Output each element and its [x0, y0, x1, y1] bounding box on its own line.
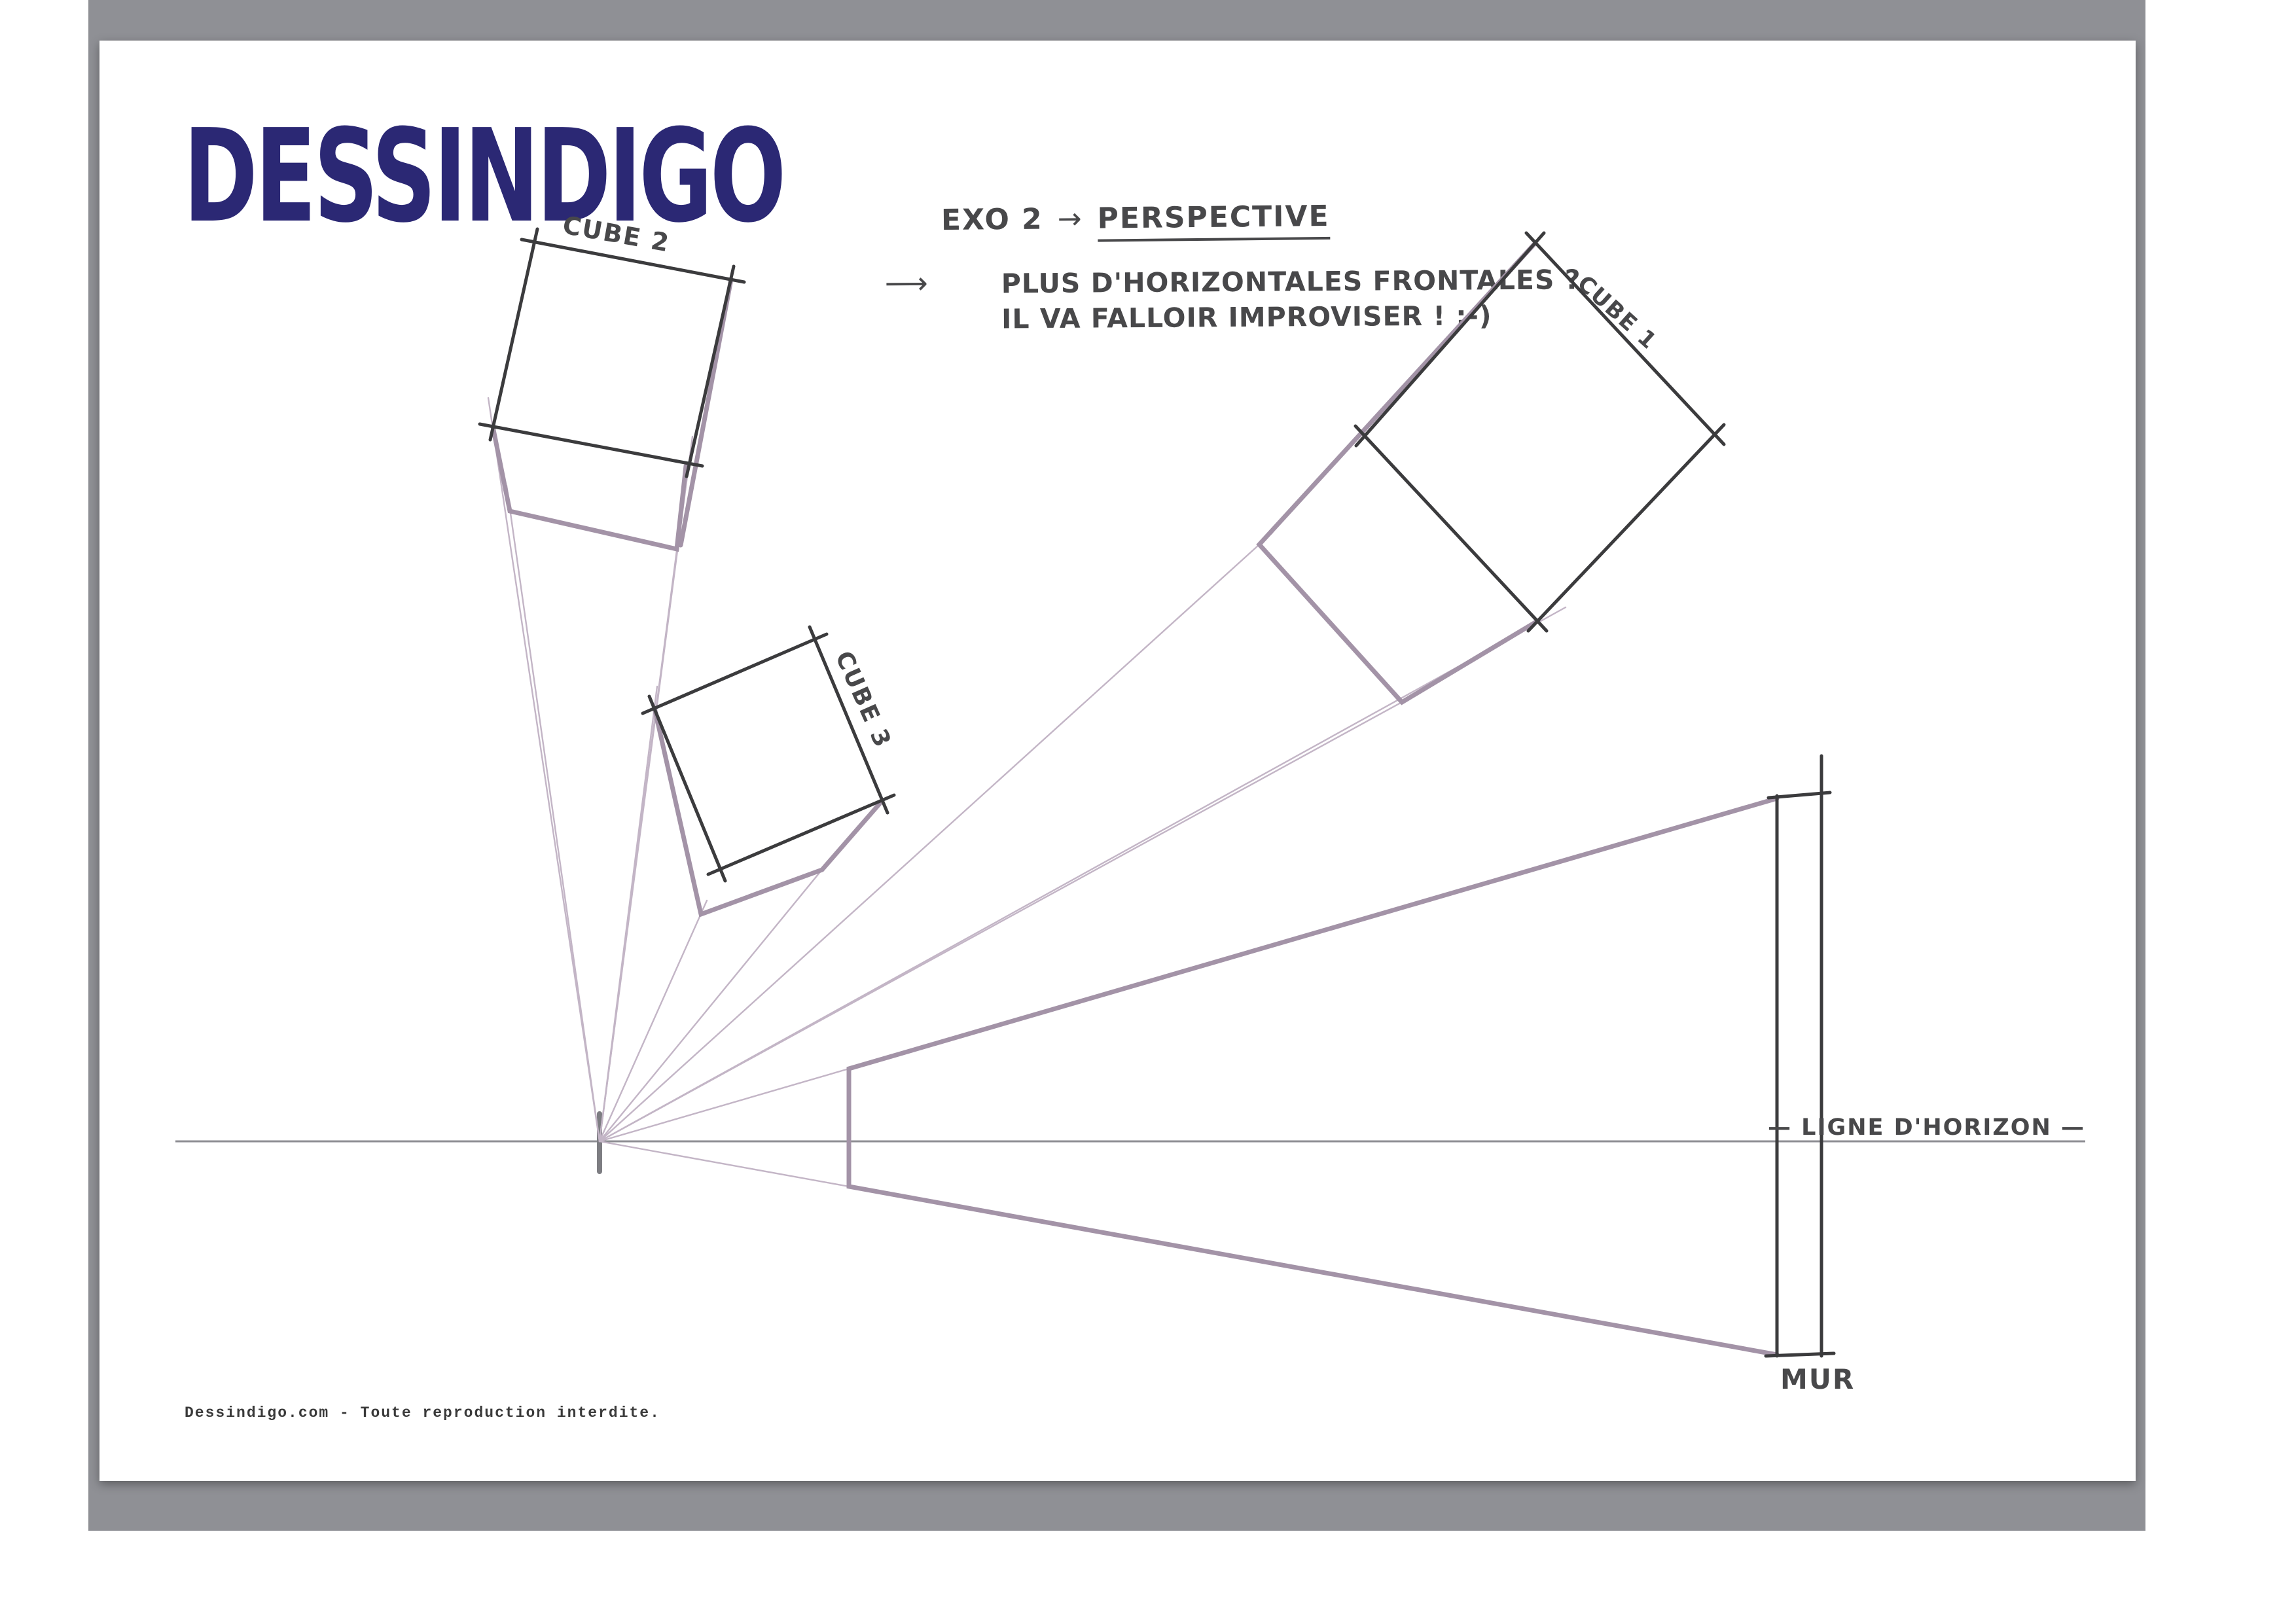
fan-line [600, 856, 833, 1141]
cube1-label: CUBE 1 [1572, 270, 1662, 355]
cube1-front-edge [1526, 233, 1724, 444]
fan-line [600, 607, 1566, 1141]
fan-line [600, 687, 657, 1141]
cube2-sketch: CUBE 2 [480, 211, 744, 549]
cube1-front-edge [1355, 426, 1547, 631]
fan-line [488, 398, 600, 1141]
cube2-front-edge [687, 266, 734, 476]
cube3-hidden-faces [655, 708, 880, 914]
cube2-front-edge [480, 424, 702, 466]
wall-sketch: MUR [849, 756, 1855, 1395]
cube1-sketch: CUBE 1 [1259, 233, 1724, 702]
fan-line [600, 1141, 849, 1186]
cube3-front-edge [643, 634, 827, 713]
fan-line [507, 486, 600, 1141]
construction-fan [488, 398, 1566, 1186]
wall-label: MUR [1780, 1363, 1855, 1395]
cube2-front-edge [490, 229, 537, 440]
cube1-front-edge [1528, 425, 1724, 631]
cube2-right-receding-edge [681, 279, 731, 545]
cube3-front-edge [708, 795, 894, 874]
cube1-front-edge [1356, 233, 1544, 446]
wall-receding-face [849, 798, 1777, 1355]
copyright-note: Dessindigo.com - Toute reproduction inte… [185, 1404, 660, 1421]
perspective-drawing: CUBE 2 CUBE 3 CUBE 1 MUR — LIGNE D'HORIZ… [0, 0, 2296, 1623]
fan-line [600, 1069, 849, 1141]
cube3-sketch: CUBE 3 [643, 627, 896, 914]
fan-line [600, 533, 1272, 1141]
horizon-label: — LIGNE D'HORIZON — [1768, 1115, 2085, 1141]
